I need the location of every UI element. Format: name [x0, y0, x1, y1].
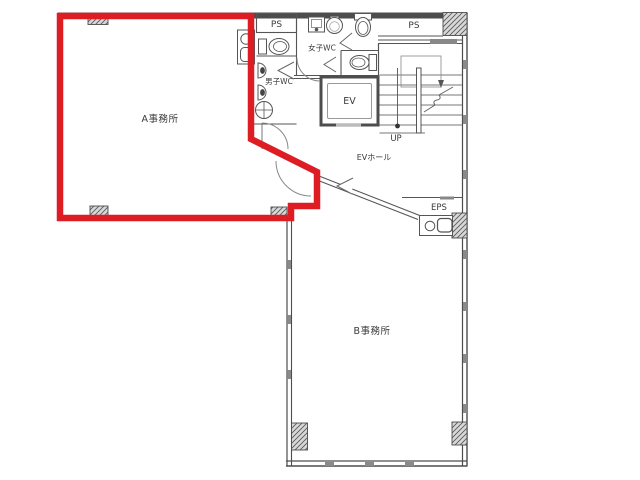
office-b-label: B事務所: [353, 325, 390, 337]
mens-wc-label: 男子WC: [265, 77, 293, 86]
stair-center-rail: [417, 68, 422, 133]
ps-right-label: PS: [408, 21, 419, 31]
floor-plan-page: A事務所 B事務所 PS PS 女子WC 男子WC EV EVホール UP EP…: [0, 0, 640, 480]
paper-background: [0, 0, 640, 480]
ev-hall-label: EVホール: [357, 153, 392, 162]
ev-label: EV: [343, 96, 356, 107]
column: [452, 213, 467, 238]
floor-plan-canvas: A事務所 B事務所 PS PS 女子WC 男子WC EV EVホール UP EP…: [0, 0, 640, 480]
column: [452, 422, 467, 445]
office-a-label: A事務所: [142, 113, 179, 125]
eps-label: EPS: [431, 203, 447, 213]
up-label: UP: [390, 134, 401, 144]
toilet-tank: [259, 39, 267, 54]
womens-wc-label: 女子WC: [308, 43, 336, 53]
column: [292, 423, 308, 450]
column: [443, 13, 467, 36]
ps-left-label: PS: [271, 20, 282, 30]
stair-landing-wall: [430, 39, 457, 44]
toilet-tank: [369, 55, 377, 71]
